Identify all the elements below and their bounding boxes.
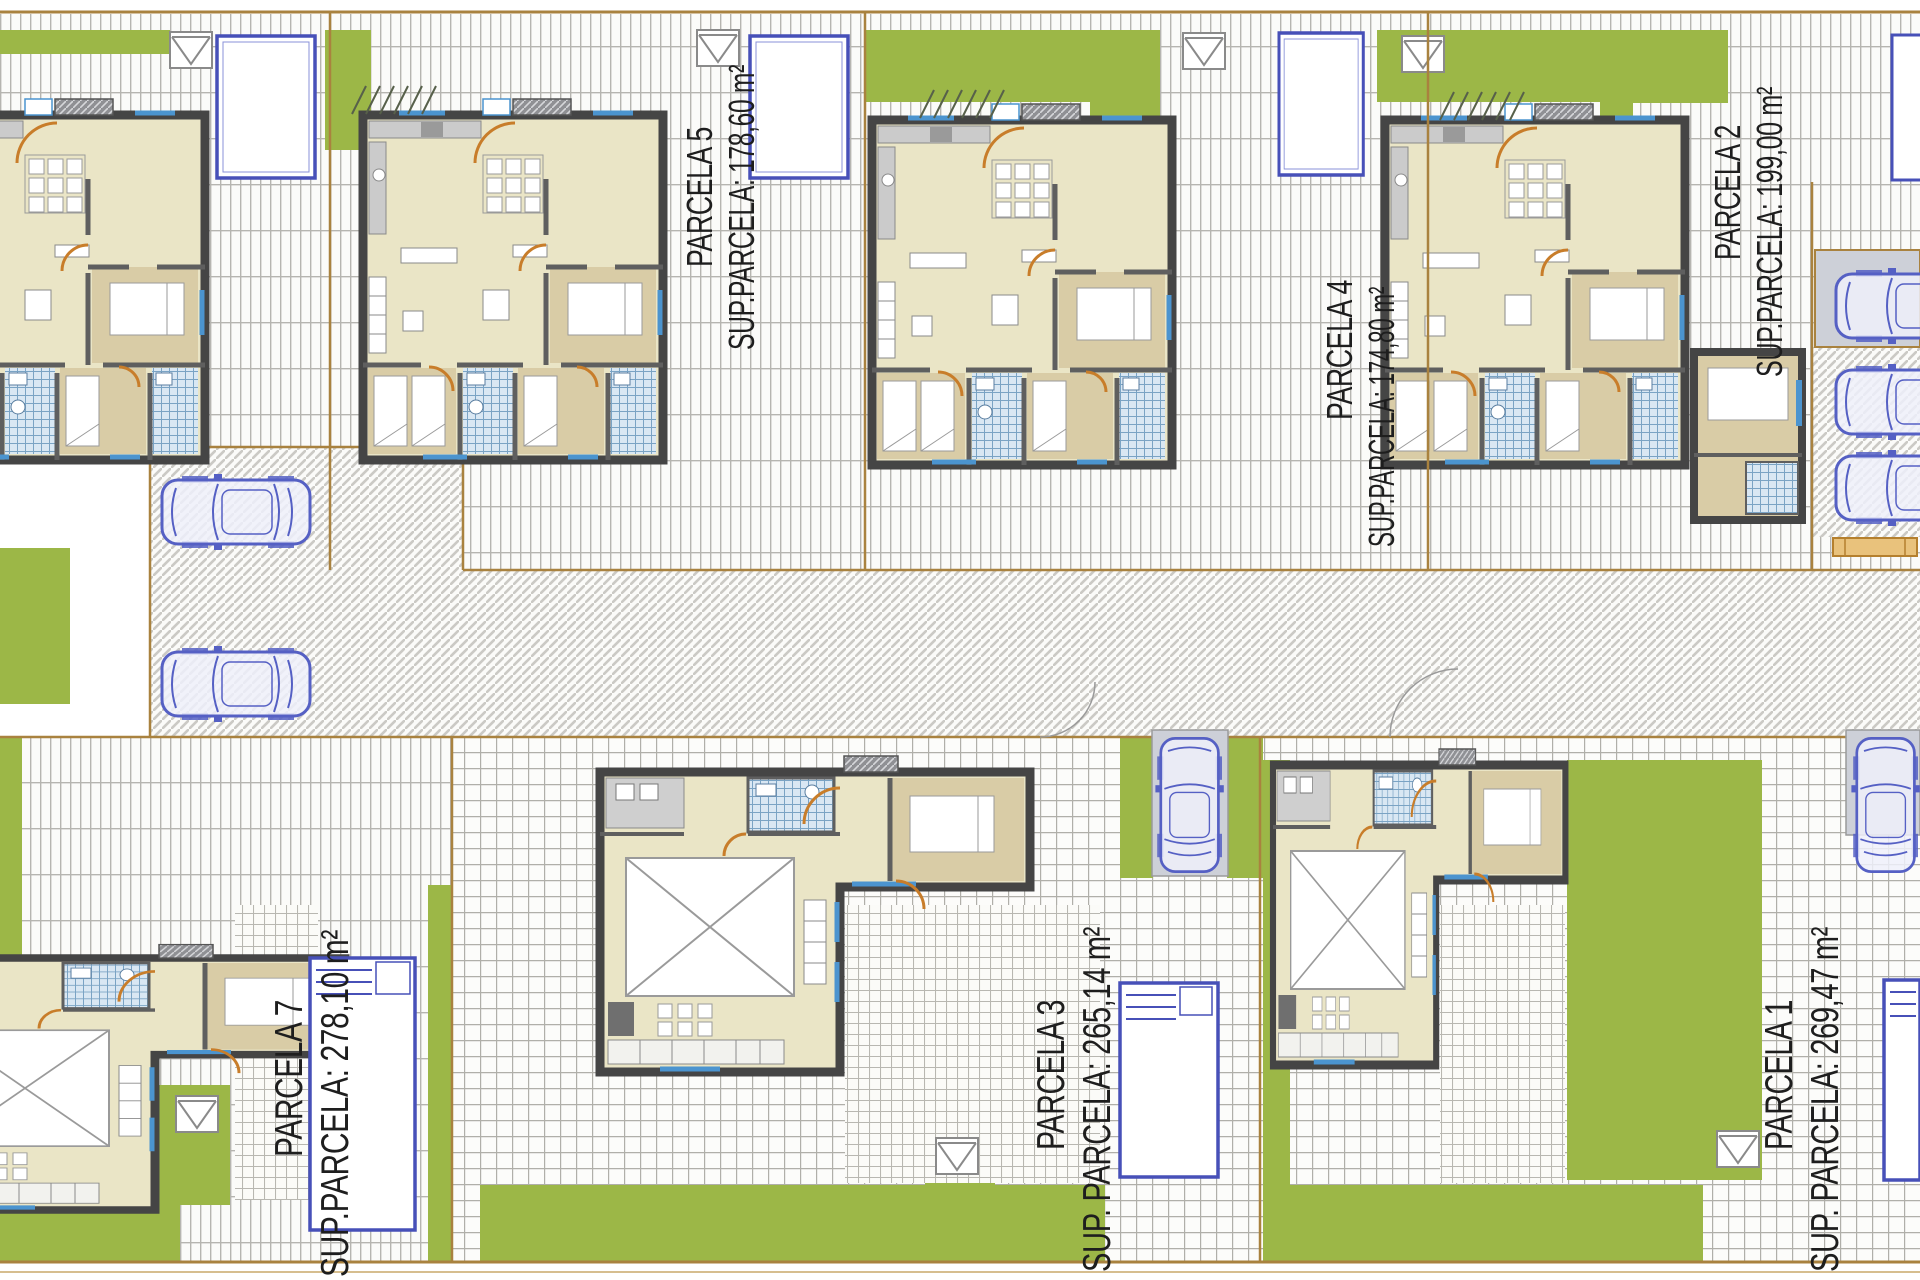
parcel-area: SUP.PARCELA: 199,00 m² [1749, 87, 1790, 377]
gable-roof-icon [936, 1138, 978, 1174]
garden-strip [0, 30, 170, 54]
car-top-view-icon [162, 474, 310, 550]
gable-roof-icon [1183, 33, 1225, 69]
parcel-area: SUP.PARCELA: 174,80 m² [1361, 287, 1402, 547]
parcel-name: PARCELA 2 [1707, 125, 1748, 260]
car-top-view-icon [1836, 450, 1920, 526]
garden-parcela4 [865, 30, 1160, 102]
parcel-area: SUP.PARCELA: 178,60 m² [721, 65, 762, 350]
car-top-view-icon [162, 646, 310, 722]
gable-roof-icon [176, 1096, 218, 1132]
parcel-name: PARCELA 1 [1758, 1000, 1801, 1150]
parcel-name: PARCELA 4 [1319, 280, 1360, 420]
garden-parcela3 [1227, 728, 1263, 878]
swimming-pool-icon [750, 36, 848, 178]
parcel-name: PARCELA 7 [268, 1000, 311, 1157]
patio-parcela1 [1440, 905, 1565, 1183]
parcel-area: SUP.PARCELA: 278,10 m² [314, 930, 357, 1277]
garden-parcela3 [1120, 728, 1153, 878]
swimming-pool-icon [1120, 983, 1218, 1177]
house-plan-parcela-5 [363, 99, 663, 460]
car-top-view-icon [1836, 364, 1920, 440]
gable-roof-icon [697, 30, 739, 66]
gable-roof-icon [1402, 36, 1444, 72]
garden-parcela1 [1567, 760, 1762, 1180]
swimming-pool-icon [1279, 33, 1363, 175]
parcel-name: PARCELA 3 [1030, 1000, 1073, 1150]
swimming-pool-icon [217, 36, 315, 178]
car-top-view-icon [1155, 738, 1223, 871]
gable-roof-icon [170, 32, 212, 68]
car-top-view-icon [1836, 268, 1920, 344]
swimming-pool-icon [1884, 980, 1920, 1180]
bench-icon [1833, 538, 1917, 556]
garden-parcela1 [1263, 1185, 1703, 1262]
garden-parcela3 [480, 1185, 1105, 1262]
garden-strip [1633, 30, 1728, 103]
car-top-view-icon [1851, 738, 1919, 871]
parcel-area: SUP. PARCELA: 265,14 m² [1076, 927, 1119, 1272]
site-plan-canvas: PARCELA 5 SUP.PARCELA: 178,60 m² PARCELA… [0, 0, 1920, 1280]
house-plan-top-left-partial [0, 99, 205, 460]
parcel-area: SUP. PARCELA: 269,47 m² [1804, 927, 1847, 1272]
gable-roof-icon [1717, 1131, 1759, 1167]
parcel-name: PARCELA 5 [679, 127, 720, 267]
garden-strip [428, 885, 452, 1262]
house-plan-parcela-4 [872, 104, 1172, 465]
swimming-pool-icon [1892, 35, 1920, 180]
site-plan: PARCELA 5 SUP.PARCELA: 178,60 m² PARCELA… [0, 0, 1920, 1280]
house-plan-parcela-2 [1385, 104, 1685, 465]
